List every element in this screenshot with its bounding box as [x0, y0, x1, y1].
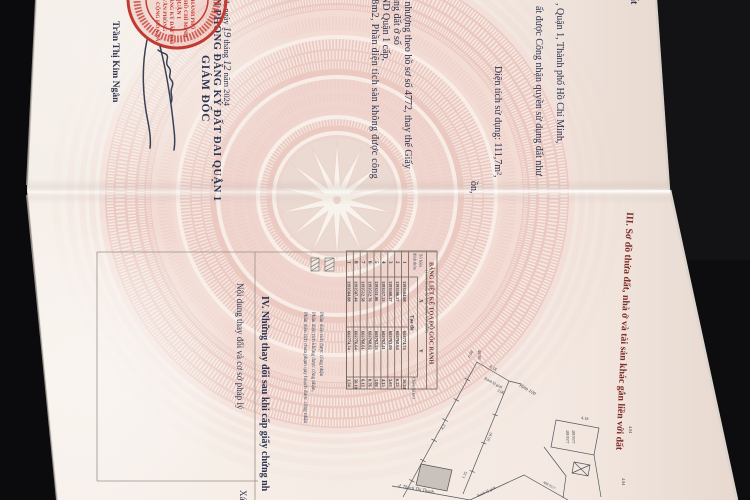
svg-text:Phần diện tích không được công: Phần diện tích không được công nhận,	[310, 312, 317, 392]
svg-text:603768.64: 603768.64	[395, 331, 400, 350]
svg-text:1193504.08: 1193504.08	[402, 281, 407, 302]
svg-text:ồn,: ồn,	[468, 181, 479, 194]
svg-text:QUẬN 1: QUẬN 1	[175, 0, 183, 19]
svg-text:6.13: 6.13	[361, 379, 366, 387]
svg-text:1193506.27: 1193506.27	[395, 281, 400, 302]
svg-text:ụng đất ở số: ụng đất ở số	[391, 0, 402, 45]
svg-text:IV. Những thay đổi sau khi cấp: IV. Những thay đổi sau khi cấp giấy chứn…	[259, 296, 270, 492]
svg-text:GIÁM ĐỐC: GIÁM ĐỐC	[199, 55, 214, 122]
svg-text:TP HỒ CHÍ MINH: TP HỒ CHÍ MINH	[182, 0, 190, 38]
svg-text:603774.74: 603774.74	[402, 331, 407, 350]
svg-text:ất: ất	[628, 0, 639, 5]
svg-text:1.00: 1.00	[374, 379, 379, 387]
svg-text:603762.41: 603762.41	[381, 331, 386, 350]
svg-text:Y: Y	[418, 349, 424, 353]
svg-text:X: X	[418, 299, 424, 303]
svg-text:, Quận 1, Thành phố Hồ Chí Min: , Quận 1, Thành phố Hồ Chí Minh,	[554, 3, 565, 143]
svg-text:THÀNH PHỐ: THÀNH PHỐ	[189, 0, 197, 30]
svg-text:603768.02: 603768.02	[367, 331, 372, 350]
svg-text:VĂN PHÒNG: VĂN PHÒNG	[161, 0, 169, 32]
svg-text:Chiều dài (m): Chiều dài (m)	[412, 378, 416, 400]
svg-text:4.04: 4.04	[628, 426, 633, 434]
svg-text:10.24: 10.24	[402, 379, 407, 390]
svg-text:ND Quận 1 cấp,: ND Quận 1 cấp,	[380, 0, 391, 61]
svg-text:Trần Thị Kim Ngân: Trần Thị Kim Ngân	[110, 21, 121, 103]
svg-text:n nhượng theo hồ sơ số 4772, t: n nhượng theo hồ sơ số 4772, thay thế Gi…	[402, 0, 413, 169]
svg-text:1193512.58: 1193512.58	[361, 281, 366, 302]
svg-text:ĐĂNG KÝ ĐẤT ĐAI: ĐĂNG KÝ ĐẤT ĐAI	[168, 0, 176, 44]
svg-text:1193517.53: 1193517.53	[381, 281, 386, 302]
svg-text:1193512.76: 1193512.76	[367, 281, 372, 302]
svg-text:488 9577: 488 9577	[565, 430, 569, 444]
svg-text:Số hiệu: Số hiệu	[419, 254, 424, 268]
svg-text:0.76: 0.76	[367, 379, 372, 387]
svg-text:18m2, Phần diện tích sàn không: 18m2, Phần diện tích sàn không được công	[369, 0, 380, 179]
svg-text:Nội dung thay đổi và cơ sở phá: Nội dung thay đổi và cơ sở pháp lý	[235, 283, 245, 410]
svg-text:1193507.44: 1193507.44	[354, 281, 359, 302]
svg-text:40.98: 40.98	[477, 350, 482, 359]
svg-text:4.15: 4.15	[381, 379, 386, 387]
svg-text:603762.53: 603762.53	[374, 331, 379, 350]
svg-text:488 9577: 488 9577	[571, 430, 575, 444]
svg-text:Xác nh: Xác nh	[238, 490, 248, 500]
svg-text:Phần diện tích được công nhận: Phần diện tích được công nhận	[318, 312, 325, 377]
svg-text:Phần diện tích chưa phạm quy h: Phần diện tích chưa phạm quy hoạch được …	[302, 312, 309, 423]
svg-text:50.10: 50.10	[354, 379, 359, 390]
svg-text:603768.61: 603768.61	[361, 331, 366, 350]
svg-text:Tọa độ: Tọa độ	[409, 315, 415, 331]
svg-text:603774.74: 603774.74	[347, 331, 352, 350]
svg-text:1193508.27: 1193508.27	[388, 281, 393, 302]
svg-text:ất được Công nhận quyền sử dụn: ất được Công nhận quyền sử dụng đất như	[533, 6, 544, 176]
svg-text:4.04: 4.04	[621, 478, 626, 486]
svg-text:đỉnh thửa: đỉnh thửa	[413, 253, 418, 270]
svg-text:CỘNG HÒA XÃ: CỘNG HÒA XÃ	[154, 2, 162, 41]
svg-text:603776.64: 603776.64	[354, 331, 359, 350]
svg-text:1193504.08: 1193504.08	[347, 281, 352, 302]
svg-text:3.50: 3.50	[347, 379, 352, 387]
svg-text:6.25: 6.25	[395, 379, 400, 387]
svg-text:603763.80: 603763.80	[388, 331, 393, 350]
svg-text:Diện tích sử dụng: 111,7m²,: Diện tích sử dụng: 111,7m²,	[492, 66, 503, 178]
svg-text:1193511.06: 1193511.06	[374, 281, 379, 302]
svg-text:5.03: 5.03	[388, 379, 393, 387]
